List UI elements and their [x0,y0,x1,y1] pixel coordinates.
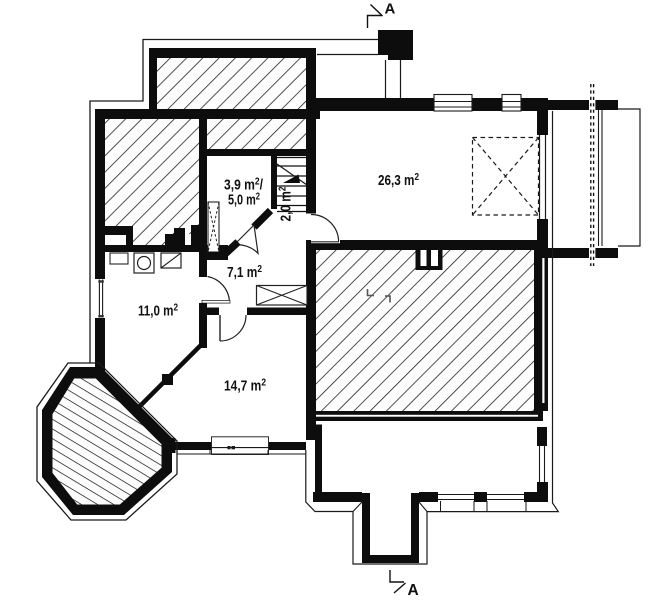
svg-text:26,3 m2: 26,3 m2 [378,171,419,189]
svg-text:11,0 m2: 11,0 m2 [138,301,178,319]
svg-text:A: A [408,582,419,599]
svg-text:2,0 m2: 2,0 m2 [276,186,294,221]
svg-text:A: A [385,1,396,18]
svg-text:14,7 m2: 14,7 m2 [224,376,266,394]
svg-text:5,0 m2: 5,0 m2 [228,190,260,208]
svg-text:7,1 m2: 7,1 m2 [227,263,262,281]
